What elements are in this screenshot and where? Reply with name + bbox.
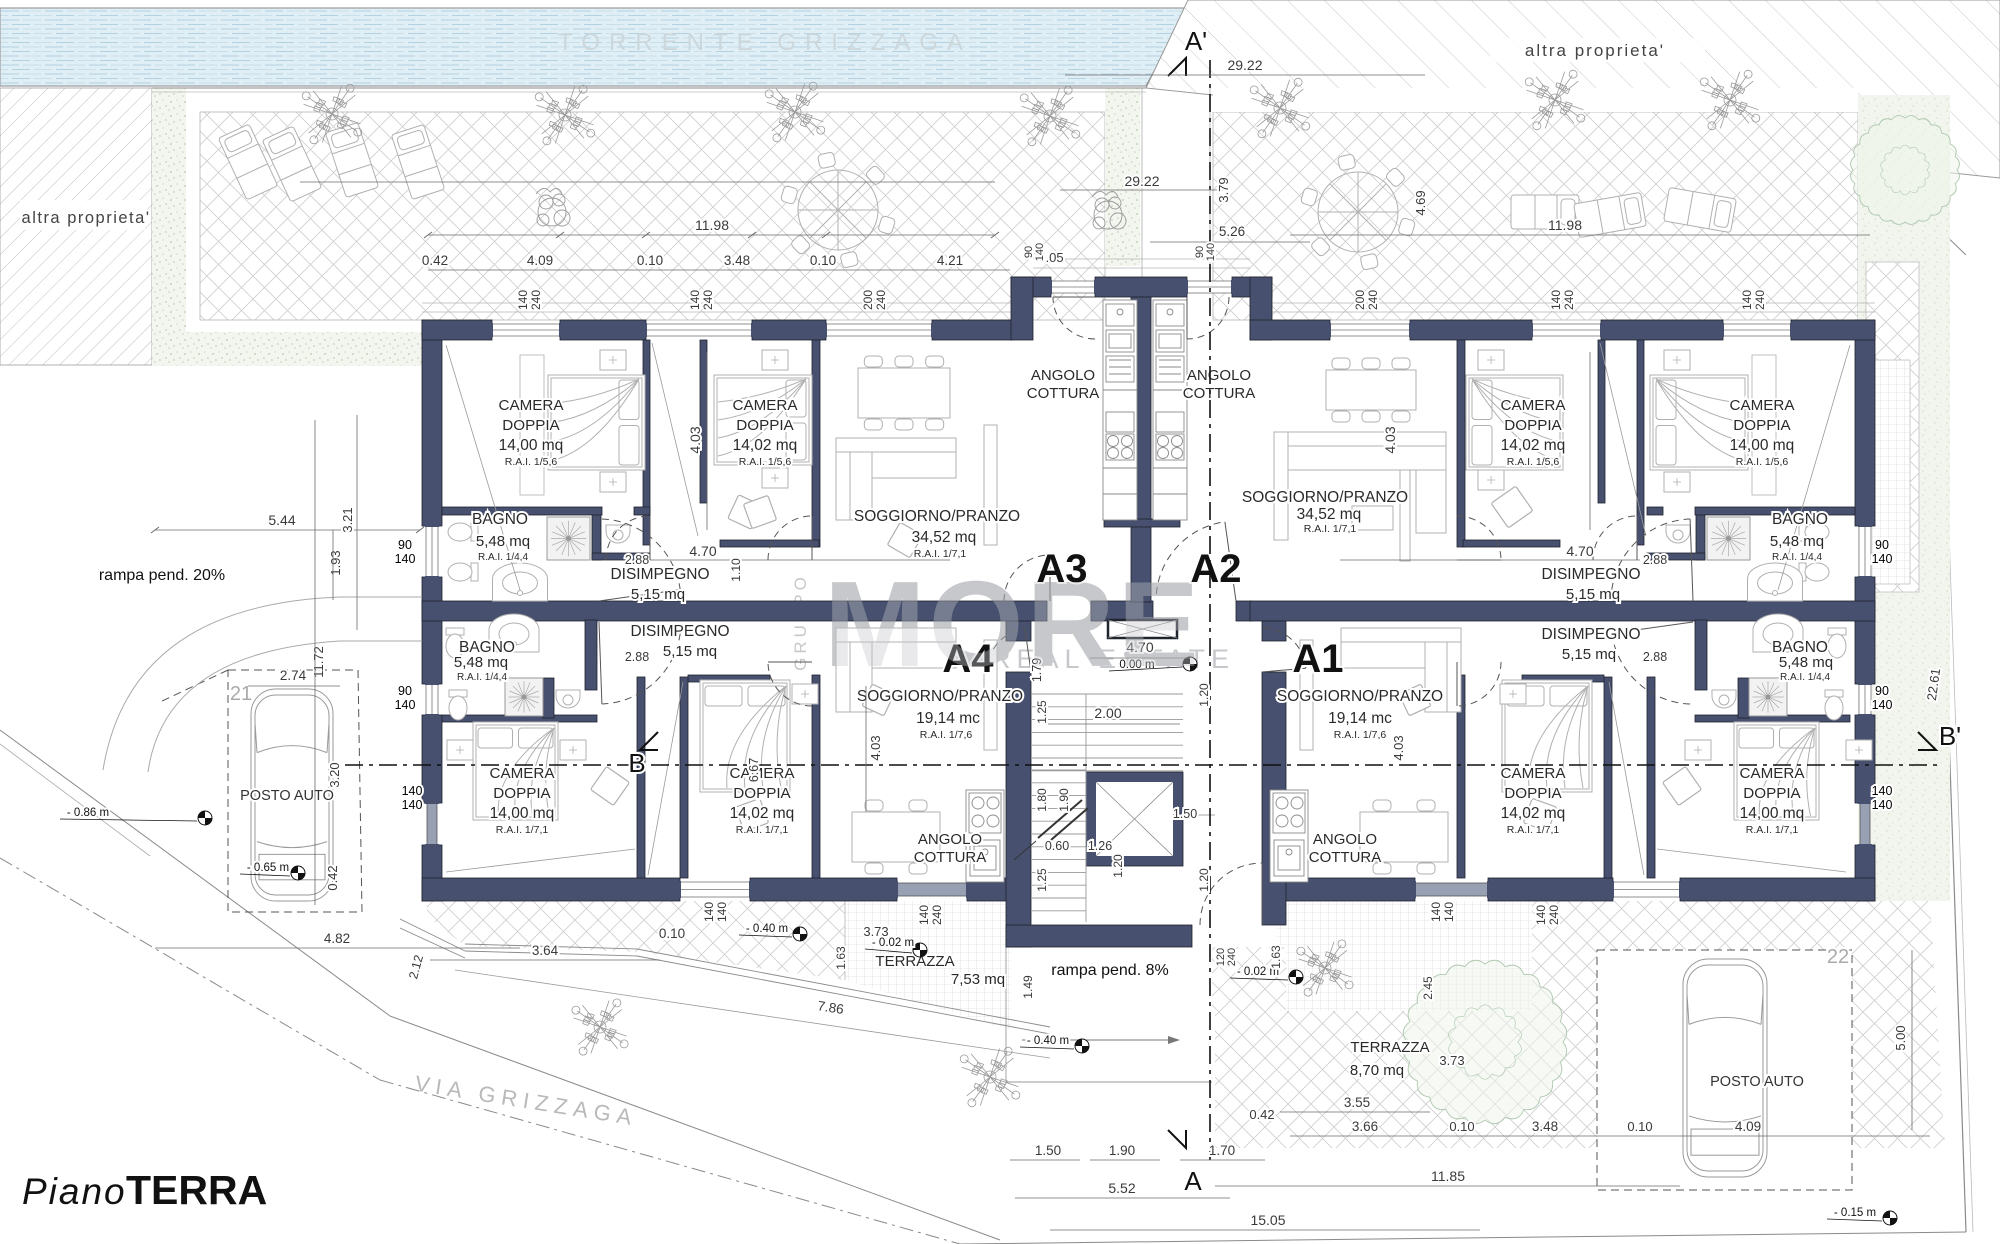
svg-text:140: 140 — [1442, 902, 1456, 922]
svg-text:5,48 mq: 5,48 mq — [1770, 533, 1824, 550]
svg-text:11.72: 11.72 — [311, 646, 326, 678]
svg-text:4.21: 4.21 — [937, 253, 963, 268]
svg-text:BAGNO: BAGNO — [472, 511, 528, 528]
svg-text:140: 140 — [1872, 798, 1893, 812]
svg-text:140: 140 — [1872, 698, 1893, 712]
svg-text:4.03: 4.03 — [687, 426, 703, 453]
svg-text:DOPPIA: DOPPIA — [733, 785, 791, 802]
svg-text:3.73: 3.73 — [863, 924, 888, 939]
svg-text:R.A.I. 1/7,6: R.A.I. 1/7,6 — [920, 729, 973, 741]
svg-text:4.03: 4.03 — [1382, 426, 1398, 453]
svg-text:3.48: 3.48 — [724, 253, 750, 268]
svg-text:altra proprieta': altra proprieta' — [22, 209, 151, 227]
svg-text:0.60: 0.60 — [1045, 839, 1069, 853]
svg-text:15.05: 15.05 — [1250, 1212, 1285, 1228]
svg-text:1.50: 1.50 — [1035, 1143, 1061, 1158]
svg-text:4.70: 4.70 — [1566, 543, 1593, 559]
svg-text:2.88: 2.88 — [1643, 553, 1667, 567]
svg-text:1.90: 1.90 — [1109, 1143, 1135, 1158]
svg-text:2.00: 2.00 — [1094, 705, 1121, 721]
svg-text:COTTURA: COTTURA — [1027, 385, 1100, 402]
svg-text:SOGGIORNO/PRANZO: SOGGIORNO/PRANZO — [854, 508, 1020, 525]
svg-text:CAMERA: CAMERA — [490, 765, 556, 782]
svg-text:3.66: 3.66 — [1352, 1119, 1378, 1134]
svg-text:R.A.I. 1/5,6: R.A.I. 1/5,6 — [1507, 456, 1560, 468]
svg-text:CAMERA: CAMERA — [1501, 765, 1567, 782]
svg-text:DISIMPEGNO: DISIMPEGNO — [630, 623, 729, 640]
svg-text:14,02 mq: 14,02 mq — [733, 437, 798, 454]
svg-text:34,52 mq: 34,52 mq — [1297, 506, 1362, 523]
svg-text:TERRAZZA: TERRAZZA — [1350, 1039, 1429, 1056]
svg-text:TERRA: TERRA — [126, 1167, 267, 1213]
svg-text:5,48 mq: 5,48 mq — [454, 654, 508, 671]
svg-text:5.00: 5.00 — [1893, 1025, 1908, 1050]
svg-text:R.A.I. 1/7,1: R.A.I. 1/7,1 — [1304, 523, 1357, 535]
svg-text:3.79: 3.79 — [1216, 177, 1231, 202]
svg-text:14,02 mq: 14,02 mq — [730, 805, 795, 822]
svg-text:140: 140 — [917, 905, 931, 925]
svg-text:- 0.40 m: - 0.40 m — [1027, 1035, 1069, 1047]
svg-text:140: 140 — [402, 784, 423, 798]
svg-text:R.A.I. 1/4,4: R.A.I. 1/4,4 — [478, 552, 528, 563]
svg-text:1.90: 1.90 — [1057, 788, 1071, 812]
svg-text:2.88: 2.88 — [625, 650, 649, 664]
svg-text:11.85: 11.85 — [1431, 1168, 1465, 1184]
svg-text:COTTURA: COTTURA — [1309, 849, 1382, 866]
svg-text:5,15 mq: 5,15 mq — [1562, 646, 1616, 663]
svg-text:240: 240 — [1753, 290, 1767, 310]
svg-text:CAMERA: CAMERA — [1740, 765, 1806, 782]
svg-text:140: 140 — [1205, 243, 1217, 261]
svg-text:R.A.I. 1/4,4: R.A.I. 1/4,4 — [457, 672, 507, 683]
svg-text:A': A' — [1185, 26, 1207, 56]
svg-text:200: 200 — [1353, 290, 1367, 310]
svg-text:0.10: 0.10 — [810, 253, 836, 268]
svg-text:1.63: 1.63 — [1269, 945, 1283, 969]
svg-text:TORRENTE GRIZZAGA: TORRENTE GRIZZAGA — [558, 29, 972, 56]
svg-text:200: 200 — [861, 290, 875, 310]
svg-text:5,15 mq: 5,15 mq — [631, 586, 685, 603]
svg-text:7,53 mq: 7,53 mq — [951, 971, 1005, 988]
svg-text:0.10: 0.10 — [637, 253, 663, 268]
svg-text:R.A.I. 1/7,1: R.A.I. 1/7,1 — [1507, 824, 1560, 836]
svg-text:SOGGIORNO/PRANZO: SOGGIORNO/PRANZO — [1242, 489, 1408, 506]
svg-text:0.10: 0.10 — [659, 926, 685, 941]
svg-text:34,52 mq: 34,52 mq — [912, 529, 977, 546]
svg-text:140: 140 — [702, 902, 716, 922]
svg-text:140: 140 — [402, 798, 423, 812]
svg-text:90: 90 — [1875, 684, 1889, 698]
svg-text:MORE: MORE — [824, 556, 1202, 692]
svg-text:SOGGIORNO/PRANZO: SOGGIORNO/PRANZO — [1277, 688, 1443, 705]
svg-text:DOPPIA: DOPPIA — [502, 417, 560, 434]
svg-text:240: 240 — [1562, 290, 1576, 310]
svg-text:19,14 mc: 19,14 mc — [916, 710, 980, 727]
svg-text:R.A.I. 1/7,6: R.A.I. 1/7,6 — [1334, 729, 1387, 741]
svg-text:5,48 mq: 5,48 mq — [1779, 654, 1833, 671]
svg-text:4.69: 4.69 — [1413, 190, 1428, 215]
svg-text:R.A.I. 1/5,6: R.A.I. 1/5,6 — [505, 456, 558, 468]
svg-text:90: 90 — [1875, 538, 1889, 552]
svg-text:4.70: 4.70 — [689, 543, 716, 559]
svg-text:3.73: 3.73 — [1439, 1053, 1464, 1068]
svg-text:R.A.I. 1/5,6: R.A.I. 1/5,6 — [739, 456, 792, 468]
svg-text:2.74: 2.74 — [280, 668, 307, 683]
svg-text:5,15 mq: 5,15 mq — [663, 643, 717, 660]
svg-text:DOPPIA: DOPPIA — [1504, 417, 1562, 434]
svg-text:0.42: 0.42 — [1249, 1107, 1274, 1122]
svg-text:- 0.65 m: - 0.65 m — [247, 862, 289, 874]
svg-text:2.45: 2.45 — [1421, 976, 1435, 1000]
svg-text:1.20: 1.20 — [1111, 854, 1125, 878]
svg-text:POSTO AUTO: POSTO AUTO — [1710, 1074, 1804, 1090]
svg-text:- 0.15 m: - 0.15 m — [1834, 1207, 1876, 1219]
svg-text:1.63: 1.63 — [834, 946, 848, 970]
svg-text:DOPPIA: DOPPIA — [1733, 417, 1791, 434]
svg-text:DOPPIA: DOPPIA — [1743, 785, 1801, 802]
svg-text:5.52: 5.52 — [1108, 1180, 1135, 1196]
svg-text:22: 22 — [1827, 946, 1849, 968]
svg-text:1.93: 1.93 — [328, 550, 343, 575]
svg-text:240: 240 — [930, 905, 944, 925]
svg-text:19,14 mc: 19,14 mc — [1328, 710, 1392, 727]
svg-text:0.42: 0.42 — [325, 865, 340, 890]
svg-text:1.10: 1.10 — [729, 558, 743, 582]
svg-text:ANGOLO: ANGOLO — [1187, 367, 1251, 384]
svg-text:CAMERA: CAMERA — [733, 397, 799, 414]
svg-text:4.09: 4.09 — [527, 253, 553, 268]
svg-text:R.A.I. 1/4,4: R.A.I. 1/4,4 — [1772, 552, 1822, 563]
svg-text:29.22: 29.22 — [1227, 57, 1262, 73]
svg-text:0.10: 0.10 — [1449, 1119, 1474, 1134]
svg-text:14,02 mq: 14,02 mq — [1501, 437, 1566, 454]
svg-text:altra proprieta': altra proprieta' — [1525, 41, 1665, 60]
svg-text:R.A.I. 1/4,4: R.A.I. 1/4,4 — [1780, 672, 1830, 683]
svg-text:COTTURA: COTTURA — [914, 849, 987, 866]
svg-text:5,48 mq: 5,48 mq — [476, 533, 530, 550]
svg-text:3.48: 3.48 — [1532, 1119, 1558, 1134]
svg-text:1.20: 1.20 — [1197, 868, 1211, 892]
svg-text:1.80: 1.80 — [1035, 788, 1049, 812]
svg-text:1.26: 1.26 — [1088, 839, 1112, 853]
svg-text:140: 140 — [1872, 784, 1893, 798]
svg-text:DISIMPEGNO: DISIMPEGNO — [1541, 566, 1640, 583]
svg-text:3.21: 3.21 — [340, 507, 355, 532]
svg-text:4.03: 4.03 — [1391, 735, 1406, 760]
svg-text:A: A — [1184, 1166, 1202, 1196]
svg-text:ANGOLO: ANGOLO — [1031, 367, 1095, 384]
svg-text:DISIMPEGNO: DISIMPEGNO — [1541, 626, 1640, 643]
svg-text:140: 140 — [1740, 290, 1754, 310]
svg-text:3.55: 3.55 — [1344, 1095, 1370, 1110]
svg-text:140: 140 — [395, 552, 416, 566]
svg-text:2.88: 2.88 — [1643, 650, 1667, 664]
svg-text:DOPPIA: DOPPIA — [493, 785, 551, 802]
svg-text:1.70: 1.70 — [1209, 1143, 1235, 1158]
svg-text:140: 140 — [1034, 243, 1046, 261]
svg-text:COTTURA: COTTURA — [1183, 385, 1256, 402]
svg-text:BAGNO: BAGNO — [1772, 511, 1828, 528]
svg-text:GRUPPO: GRUPPO — [791, 573, 810, 671]
svg-text:4.09: 4.09 — [1735, 1119, 1761, 1134]
svg-text:R.A.I. 1/5,6: R.A.I. 1/5,6 — [1736, 456, 1789, 468]
svg-text:Piano: Piano — [22, 1171, 127, 1212]
svg-text:R.A.I. 1/7,1: R.A.I. 1/7,1 — [736, 824, 789, 836]
svg-text:140: 140 — [395, 698, 416, 712]
svg-text:140: 140 — [688, 290, 702, 310]
svg-text:0.42: 0.42 — [422, 253, 448, 268]
svg-text:90: 90 — [398, 538, 412, 552]
svg-text:CAMERA: CAMERA — [730, 765, 796, 782]
svg-text:240: 240 — [874, 290, 888, 310]
svg-text:ANGOLO: ANGOLO — [1313, 831, 1377, 848]
svg-text:CAMERA: CAMERA — [1730, 397, 1796, 414]
svg-text:14,00 mq: 14,00 mq — [1730, 437, 1795, 454]
svg-text:5,15 mq: 5,15 mq — [1566, 586, 1620, 603]
svg-text:DOPPIA: DOPPIA — [1504, 785, 1562, 802]
svg-text:3.64: 3.64 — [532, 943, 559, 958]
svg-text:29.22: 29.22 — [1124, 173, 1159, 189]
svg-text:A1: A1 — [1292, 637, 1343, 681]
svg-text:140: 140 — [1872, 552, 1893, 566]
svg-text:rampa pend. 20%: rampa pend. 20% — [99, 567, 225, 584]
svg-text:240: 240 — [529, 290, 543, 310]
svg-text:5.44: 5.44 — [268, 512, 295, 528]
svg-text:240: 240 — [1547, 905, 1561, 925]
svg-text:11.98: 11.98 — [1548, 217, 1582, 233]
svg-text:rampa pend. 8%: rampa pend. 8% — [1051, 962, 1168, 979]
svg-text:2.88: 2.88 — [625, 553, 649, 567]
svg-text:1.50: 1.50 — [1173, 807, 1197, 821]
svg-text:140: 140 — [715, 902, 729, 922]
svg-text:14,00 mq: 14,00 mq — [490, 805, 555, 822]
svg-text:- 0.40 m: - 0.40 m — [746, 923, 788, 935]
svg-text:B': B' — [1939, 721, 1961, 751]
svg-text:240: 240 — [1366, 290, 1380, 310]
svg-text:140: 140 — [516, 290, 530, 310]
svg-text:14,00 mq: 14,00 mq — [499, 437, 564, 454]
svg-text:CAMERA: CAMERA — [499, 397, 565, 414]
svg-text:140: 140 — [1549, 290, 1563, 310]
svg-text:1.25: 1.25 — [1035, 700, 1049, 724]
svg-text:240: 240 — [1226, 948, 1238, 966]
svg-text:8,70 mq: 8,70 mq — [1350, 1062, 1404, 1079]
svg-text:1.49: 1.49 — [1021, 975, 1035, 999]
svg-text:B: B — [628, 748, 645, 778]
svg-text:4.82: 4.82 — [324, 931, 350, 946]
svg-text:14,02 mq: 14,02 mq — [1501, 805, 1566, 822]
svg-text:6.67: 6.67 — [747, 758, 761, 782]
svg-text:DISIMPEGNO: DISIMPEGNO — [610, 566, 709, 583]
svg-text:R.A.I. 1/7,1: R.A.I. 1/7,1 — [496, 824, 549, 836]
svg-text:140: 140 — [1429, 902, 1443, 922]
svg-text:- 0.86 m: - 0.86 m — [67, 807, 109, 819]
svg-text:1.25: 1.25 — [1035, 868, 1049, 892]
svg-text:0.10: 0.10 — [1627, 1119, 1652, 1134]
svg-text:R.A.I. 1/7,1: R.A.I. 1/7,1 — [1746, 824, 1799, 836]
svg-text:4.03: 4.03 — [868, 735, 883, 760]
svg-text:140: 140 — [1534, 905, 1548, 925]
svg-text:90: 90 — [398, 684, 412, 698]
svg-text:14,00 mq: 14,00 mq — [1740, 805, 1805, 822]
svg-text:5.26: 5.26 — [1219, 224, 1245, 239]
svg-text:ANGOLO: ANGOLO — [918, 831, 982, 848]
svg-text:DOPPIA: DOPPIA — [736, 417, 794, 434]
svg-text:240: 240 — [701, 290, 715, 310]
svg-text:POSTO AUTO: POSTO AUTO — [240, 788, 334, 804]
svg-text:CAMERA: CAMERA — [1501, 397, 1567, 414]
svg-text:11.98: 11.98 — [695, 217, 729, 233]
svg-text:3.20: 3.20 — [327, 762, 342, 787]
